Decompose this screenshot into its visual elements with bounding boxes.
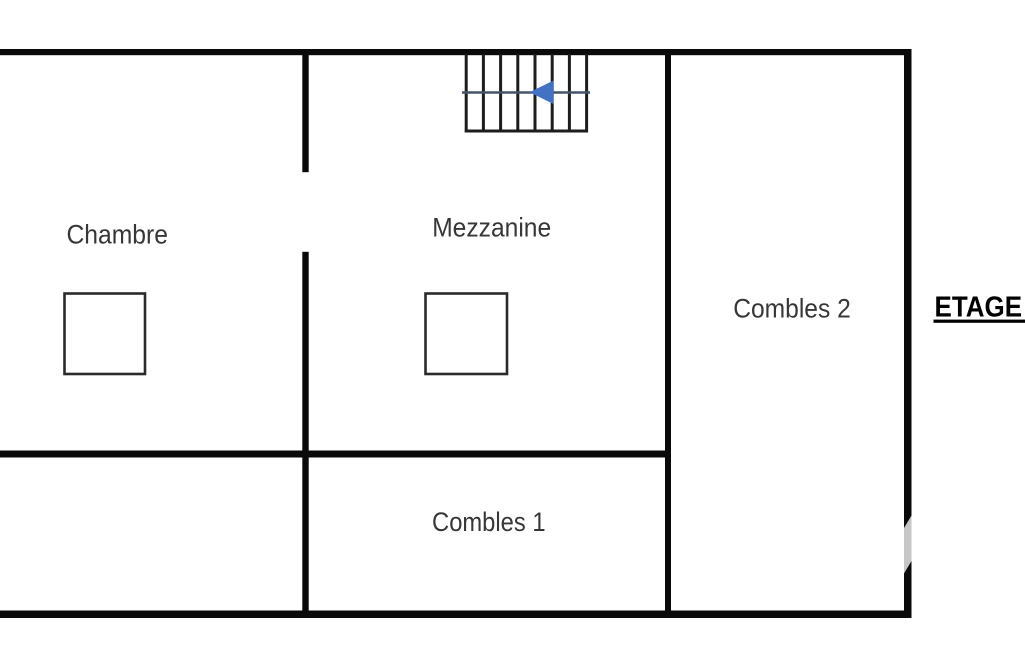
svg-text:ETAGE: ETAGE: [935, 292, 1023, 324]
svg-text:Combles 1: Combles 1: [432, 507, 546, 537]
svg-text:Chambre: Chambre: [66, 220, 168, 250]
svg-text:Combles 2: Combles 2: [733, 294, 851, 324]
svg-text:Mezzanine: Mezzanine: [432, 213, 551, 243]
